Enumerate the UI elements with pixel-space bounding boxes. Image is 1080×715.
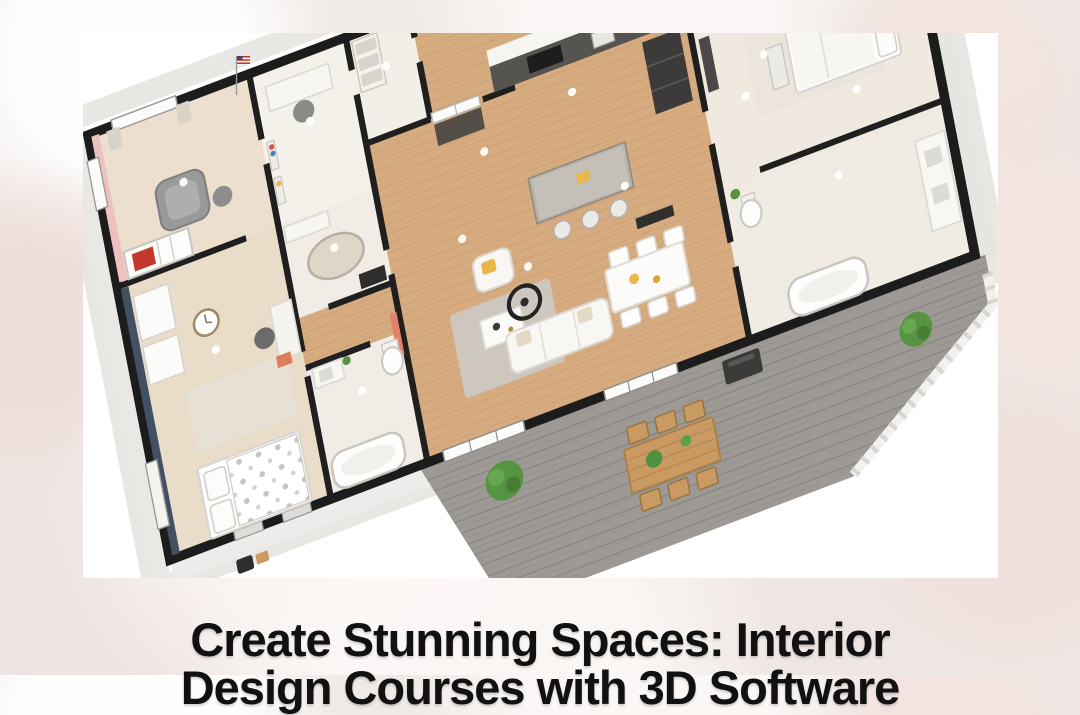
floor-plan-image-card [83,33,998,578]
poster-page: { "poster": { "headline_line1": "Create … [0,0,1080,675]
headline-line-2: Design Courses with 3D Software [0,660,1080,715]
headline-line-1: Create Stunning Spaces: Interior [0,612,1080,667]
floor-plan-render [83,33,998,578]
